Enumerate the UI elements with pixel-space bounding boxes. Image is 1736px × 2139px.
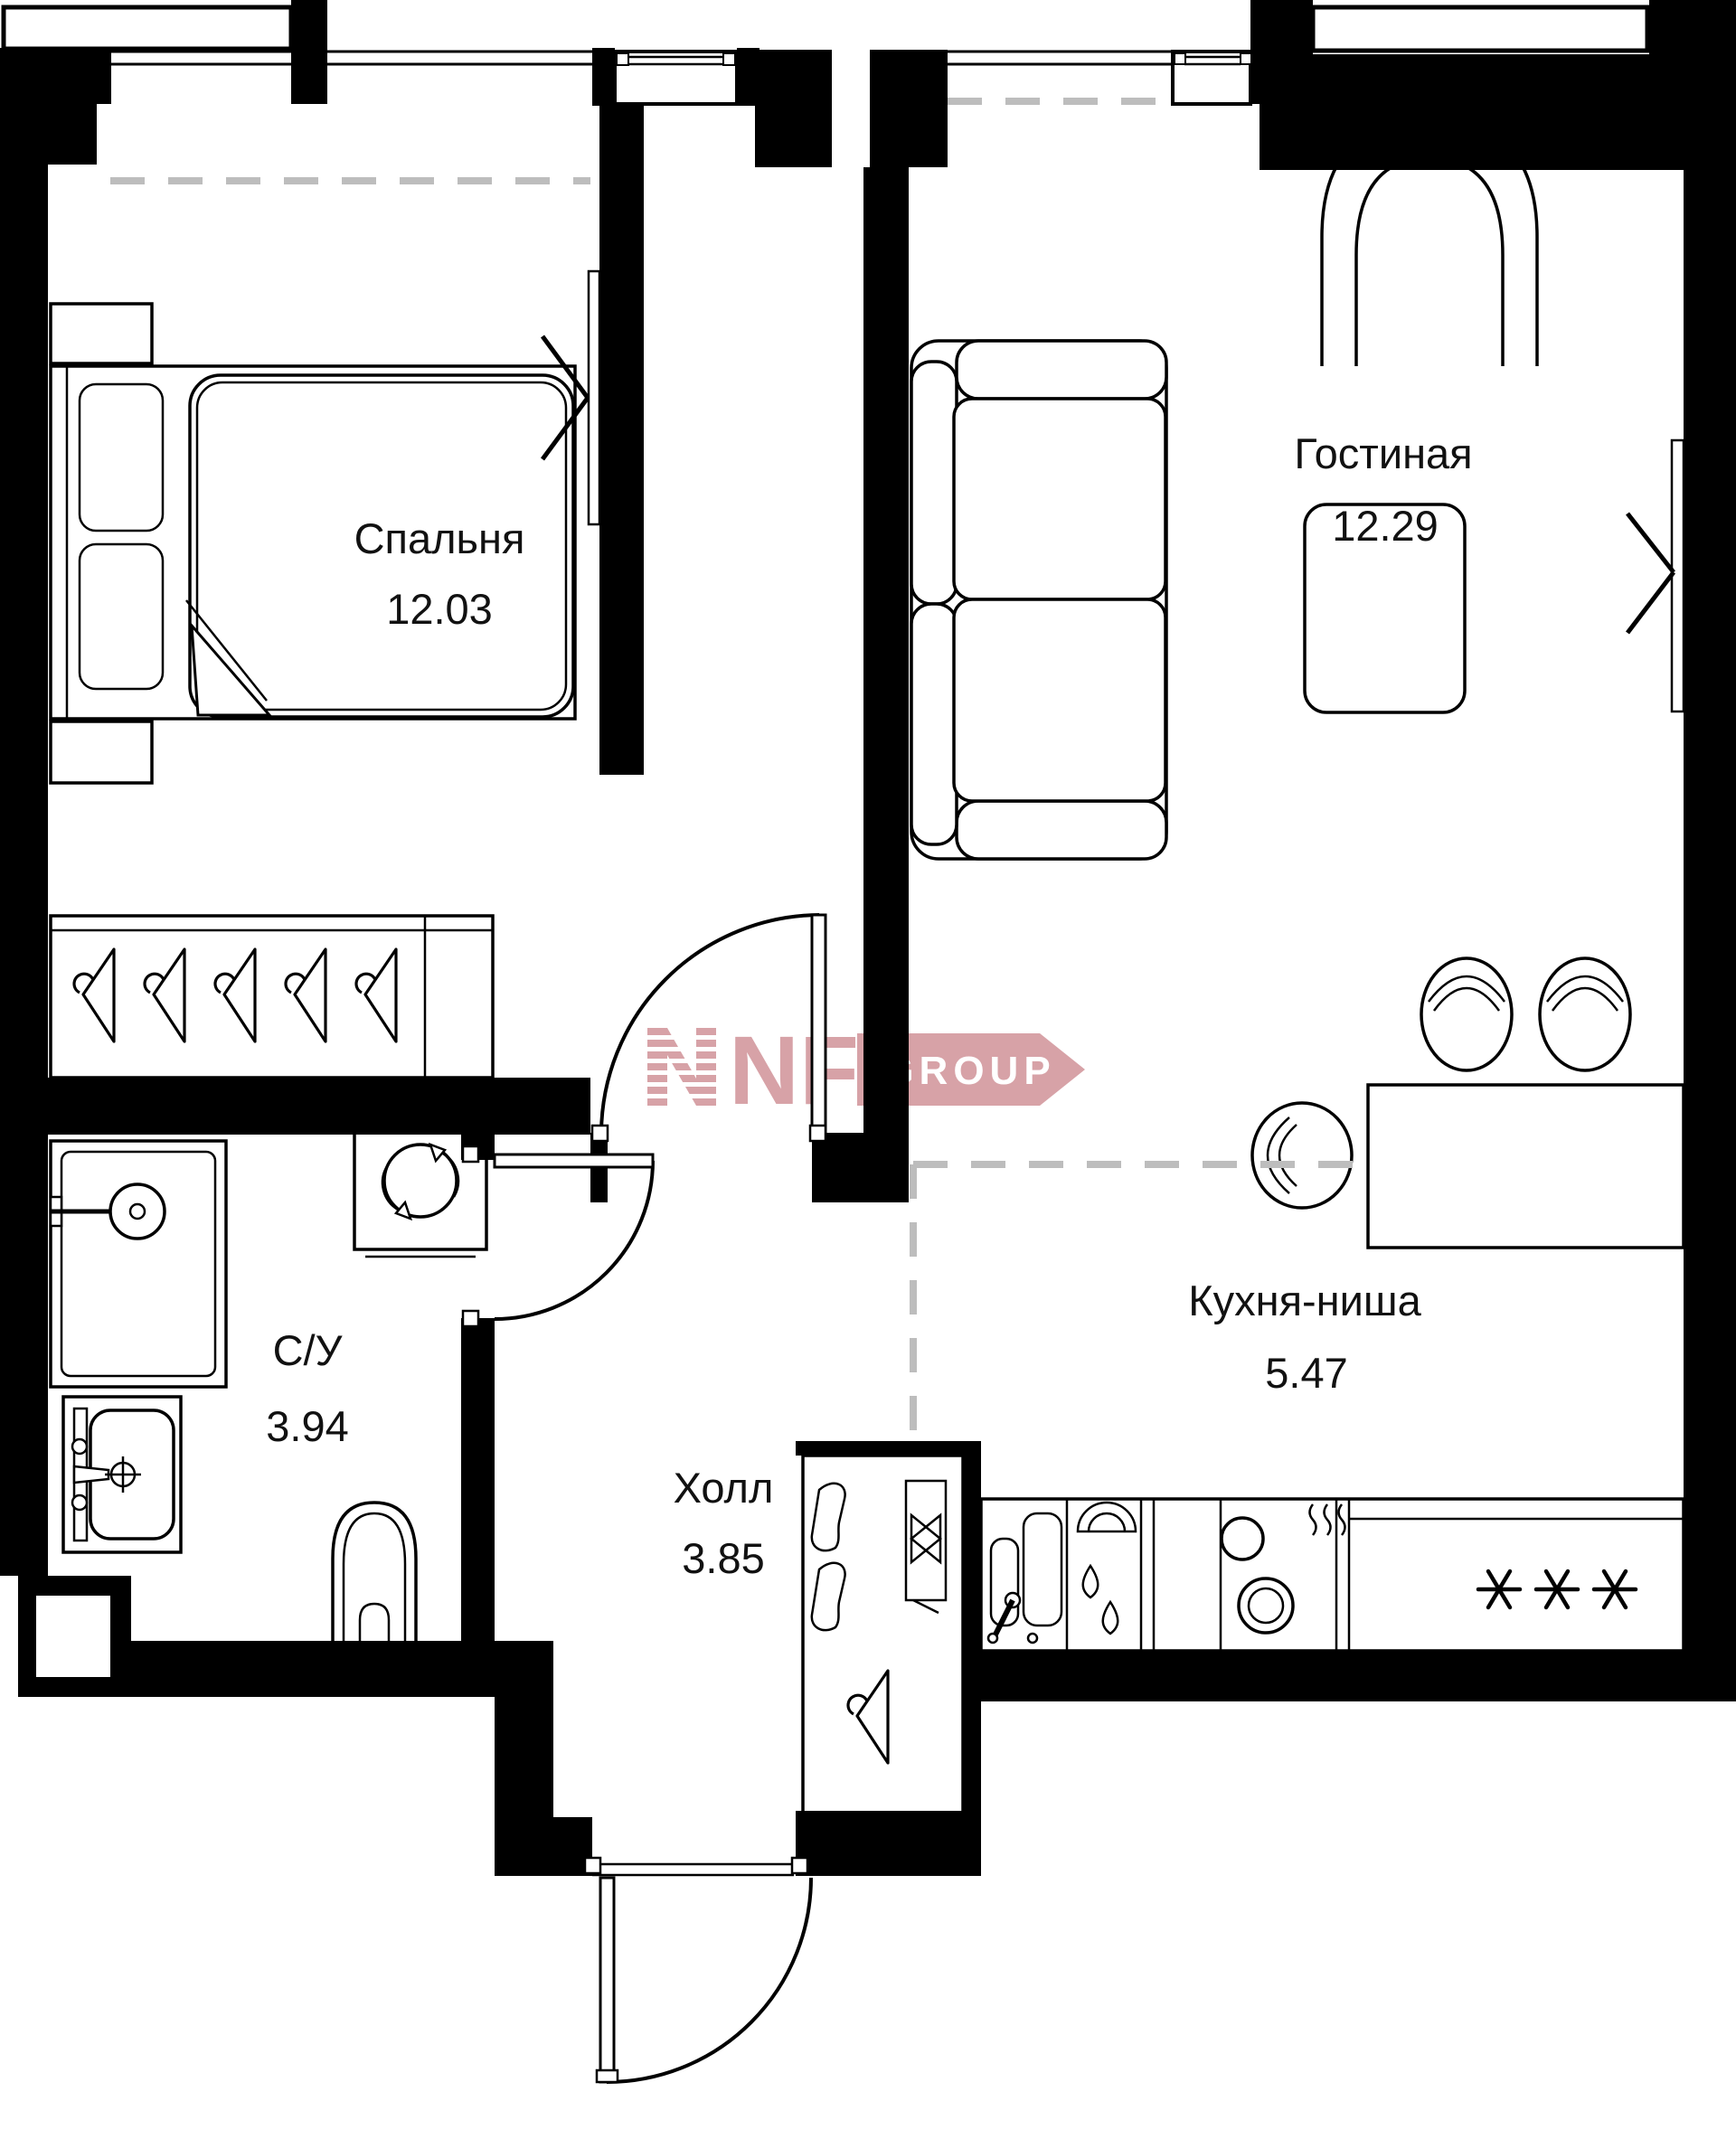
chair-icon xyxy=(1540,958,1630,1070)
dining-table xyxy=(1368,1085,1684,1248)
room-area-kitchen: 5.47 xyxy=(1265,1349,1347,1397)
room-label-hall: Холл xyxy=(674,1464,774,1512)
sofa-back-cushion xyxy=(911,362,957,604)
wall xyxy=(29,1078,590,1135)
window-icon xyxy=(110,52,597,64)
shaft-opening xyxy=(36,1596,110,1677)
wall xyxy=(796,1441,981,1456)
logo-mark-icon xyxy=(647,1028,716,1106)
wall xyxy=(1684,170,1736,1701)
window-icon xyxy=(948,52,1173,64)
wall xyxy=(461,1318,495,1683)
balcony-door-icon xyxy=(615,52,737,104)
room-label-living: Гостиная xyxy=(1294,429,1472,477)
wall xyxy=(981,1651,1736,1701)
room-area-bedroom: 12.03 xyxy=(386,585,493,633)
wall xyxy=(870,50,948,167)
sofa-armrest xyxy=(957,801,1166,859)
room-area-bathroom: 3.94 xyxy=(266,1402,348,1450)
pillow-icon xyxy=(80,544,163,689)
room-label-kitchen: Кухня-ниша xyxy=(1188,1277,1421,1324)
dining-set xyxy=(1252,958,1684,1248)
sofa-back-cushion xyxy=(911,604,957,844)
living-tv-icon xyxy=(1627,440,1684,711)
balcony-door-icon xyxy=(1173,52,1251,104)
wall xyxy=(599,104,644,775)
bathtub-icon xyxy=(51,1141,226,1387)
balcony-outline xyxy=(1313,7,1647,51)
wall xyxy=(0,48,48,1576)
shower-faucet-icon xyxy=(110,1184,165,1239)
closet-icon xyxy=(803,1456,963,1813)
bathroom-door-icon xyxy=(463,1146,653,1326)
kitchen-counter xyxy=(981,1499,1684,1651)
room-area-hall: 3.85 xyxy=(682,1534,764,1582)
wall xyxy=(495,1697,553,1876)
room-area-living: 12.29 xyxy=(1332,502,1439,550)
balcony-outline xyxy=(4,7,291,49)
wall xyxy=(755,50,832,167)
wall xyxy=(963,1454,981,1811)
wall xyxy=(97,48,111,104)
wall xyxy=(812,1133,909,1202)
wall xyxy=(1649,0,1736,170)
room-label-bathroom: С/У xyxy=(273,1326,344,1374)
zone-lines xyxy=(110,101,1368,1441)
floor-plan: NF GROUP xyxy=(0,0,1736,2139)
sofa-armrest xyxy=(957,341,1166,399)
wall xyxy=(131,1641,553,1697)
faucet-handle xyxy=(74,1466,108,1483)
logo-letters: NF xyxy=(729,1015,859,1125)
sink-icon xyxy=(63,1397,181,1552)
wardrobe-icon xyxy=(51,916,493,1078)
room-label-bedroom: Спальня xyxy=(354,514,525,562)
wall xyxy=(796,1811,981,1876)
chair-icon xyxy=(1421,958,1512,1070)
toilet-icon xyxy=(333,1503,416,1644)
nightstand xyxy=(51,721,152,783)
wall xyxy=(592,48,615,106)
wall xyxy=(1260,54,1649,170)
pillow-icon xyxy=(80,384,163,531)
logo-suffix: GROUP xyxy=(882,1049,1055,1093)
sofa-seat xyxy=(954,599,1165,801)
sofa-seat xyxy=(954,399,1165,599)
wall xyxy=(863,167,909,1133)
sofa-icon xyxy=(911,341,1166,859)
nightstand xyxy=(51,304,152,363)
entrance-door-icon xyxy=(585,1858,811,2082)
